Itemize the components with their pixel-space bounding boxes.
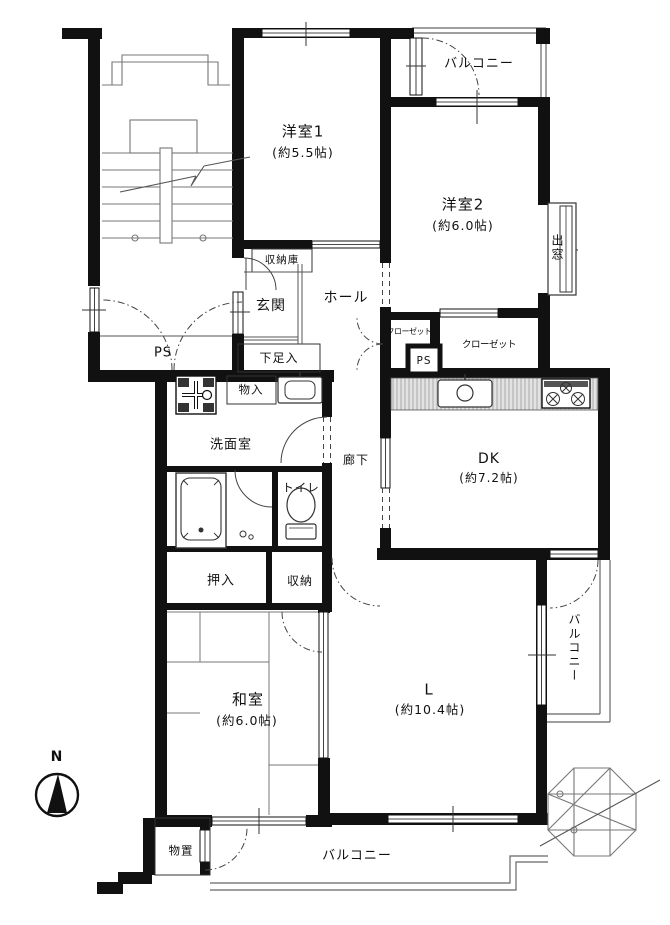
stove-burners-icon [542,379,590,408]
floor-plan: 洋室1 (約5.5帖) バルコニー 洋室2 (約6.0帖) 出窓 収納庫 玄関 … [0,0,670,925]
vanity-sink-icon [278,372,322,403]
compass-north-icon [36,774,78,816]
staircase-icon [102,55,250,243]
room-size-washitsu: (約6.0帖) [216,715,278,728]
room-label-washitsu: 和室 [232,693,264,708]
room-label-yoshitsu1: 洋室1 [282,125,325,140]
oshiire-label: 押入 [207,575,235,588]
walls [62,28,610,894]
room-size-living: (約10.4帖) [395,704,466,717]
kitchen-counter [391,374,598,410]
balcony-top-label: バルコニー [444,58,514,71]
room-size-dk: (約7.2帖) [459,472,518,484]
monoire-label: 物入 [239,384,264,396]
closet-left-label: クローゼット [387,328,432,336]
balcony-right-label: バルコニー [568,613,580,683]
getabako-label: 下足入 [259,352,298,364]
roka-label: 廊下 [343,454,369,466]
washing-machine-icon [176,376,216,414]
bay-window-label: 出窓 [551,234,563,262]
partition-lines [100,249,320,875]
room-label-dk: DK [478,452,500,466]
room-label-yoshitsu2: 洋室2 [442,198,485,213]
ps-small-label: PS [417,356,432,367]
shunoko-label: 収納庫 [265,255,300,266]
compass-north-label: N [51,750,64,764]
ps-main-label: PS [154,347,172,360]
senmenshitsu-label: 洗面室 [210,439,252,452]
floor-plan-drawing [0,0,670,925]
spiral-staircase-icon [540,768,660,856]
room-label-living: L [424,683,433,698]
closet-right-label: クローゼット [462,340,516,350]
shuno-label: 収納 [287,575,313,587]
room-size-yoshitsu2: (約6.0帖) [432,220,494,233]
balcony-bottom-label: バルコニー [322,850,392,863]
genkan-label: 玄関 [256,299,286,313]
toilet-label: トイレ [282,482,320,494]
monooki-label: 物置 [169,845,194,857]
bathtub-icon [176,473,226,548]
hall-label: ホール [324,291,369,305]
room-size-yoshitsu1: (約5.5帖) [272,147,334,160]
